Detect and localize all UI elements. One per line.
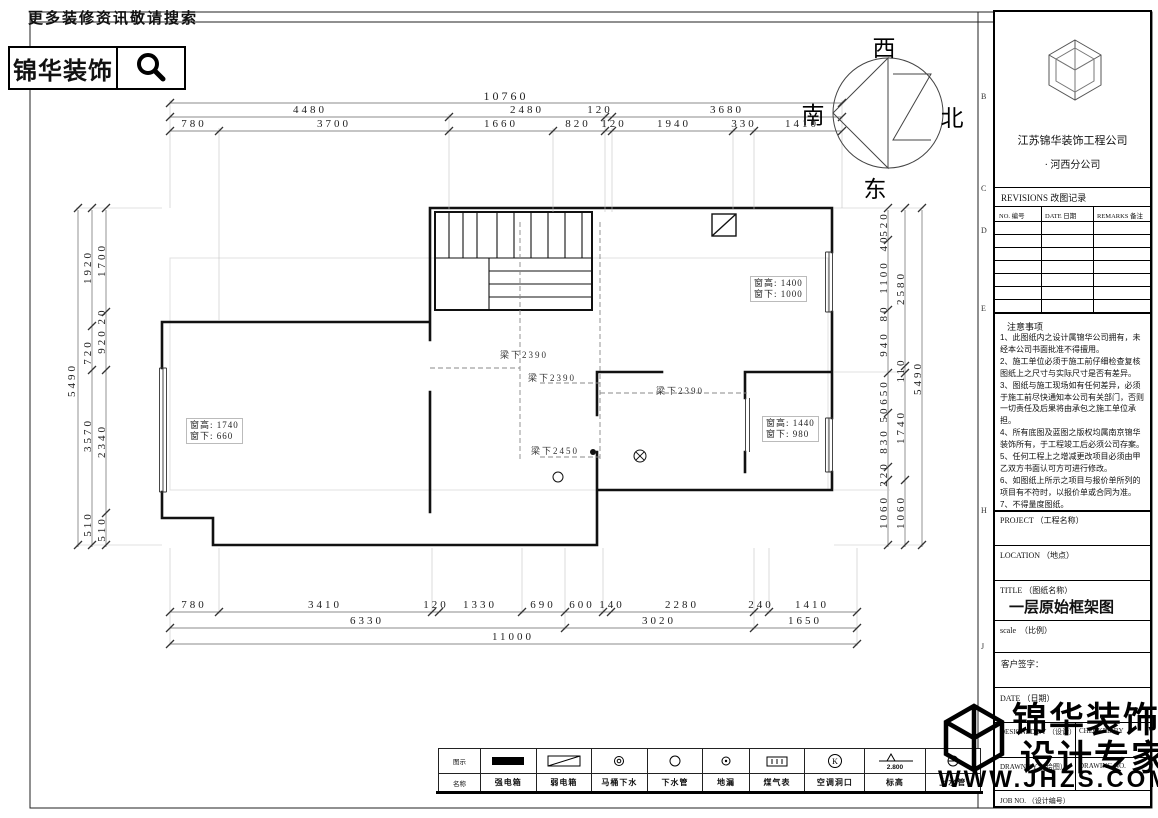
brand-name: 锦华装饰 — [10, 51, 116, 86]
zone-letter: H — [981, 506, 987, 515]
zone-letter: J — [981, 642, 984, 651]
dim-text: 1920 — [82, 250, 94, 284]
legend-item-name: 空调洞口 — [805, 774, 864, 791]
legend-underline — [436, 791, 983, 794]
dimension-ticks — [74, 99, 926, 648]
legend-item: 煤气表 — [750, 749, 806, 791]
beam-label: 梁下2450 — [531, 444, 579, 457]
dim-text: 3410 — [308, 599, 342, 611]
dim-text: 1060 — [895, 495, 907, 529]
project-label: PROJECT （工程名称） — [1000, 515, 1084, 526]
dim-text: 510 — [96, 516, 108, 542]
dim-text: 110 — [895, 357, 907, 382]
window-label: 窗高: 1400 窗下: 1000 — [750, 276, 807, 302]
dim-text: 2280 — [665, 599, 699, 611]
title-label: TITLE （图纸名称） — [1000, 585, 1072, 596]
dim-text: 2340 — [96, 424, 108, 458]
compass-east: 东 — [864, 170, 887, 204]
toilet-drain-symbol — [592, 749, 647, 774]
dim-text: 4480 — [293, 104, 327, 116]
window-label: 窗高: 1440 窗下: 980 — [762, 416, 819, 442]
legend-item: K 空调洞口 — [805, 749, 865, 791]
dim-text: 830 — [878, 428, 890, 454]
legend-item: 强电箱 — [481, 749, 537, 791]
svg-text:K: K — [832, 757, 838, 766]
watermark-url: WWW.JHZS.COM — [938, 766, 1158, 794]
window-height: 窗高: 1440 — [766, 418, 815, 429]
dim-text: 5490 — [912, 361, 924, 395]
legend-header-symbol: 图示 — [439, 749, 480, 774]
dim-text: 11000 — [492, 631, 534, 643]
dim-text: 1410 — [795, 599, 829, 611]
note-item: 5、任何工程上之增减更改项目必须由甲乙双方书面认可方可进行修改。 — [1000, 451, 1147, 474]
viewport-artifact — [170, 258, 828, 490]
dim-text: 510 — [82, 511, 94, 537]
legend-item-name: 马桶下水 — [592, 774, 647, 791]
drawing-title: 一层原始框架图 — [1009, 596, 1114, 617]
dim-text: 600 — [569, 599, 595, 611]
dim-text: 80 — [878, 305, 890, 322]
legend-item-name: 弱电箱 — [537, 774, 592, 791]
dim-text: 940 — [878, 331, 890, 357]
compass-icon — [833, 58, 943, 168]
legend-item: 地漏 — [703, 749, 749, 791]
compass-north: 北 — [941, 99, 964, 133]
dimension-lines — [78, 103, 922, 644]
dim-text: 120 — [423, 599, 449, 611]
note-item: 4、所有底图及蓝图之版权均属南京锦华装饰所有，于工程竣工后必须公司存案。 — [1000, 427, 1147, 450]
legend-item-name: 下水管 — [648, 774, 703, 791]
location-label: LOCATION （地点） — [1000, 550, 1074, 561]
dim-text: 1650 — [788, 615, 822, 627]
legend-item: 马桶下水 — [592, 749, 648, 791]
note-item: 3、图纸与施工现场如有任何差异，必须于施工前尽快通知本公司有关部门，否则一切责任… — [1000, 380, 1147, 426]
rev-col-remarks: REMARKS 备注 — [1097, 210, 1143, 220]
client-signature-label: 客户签字： — [1001, 658, 1044, 670]
dim-text: 2580 — [895, 271, 907, 305]
zone-letter: D — [981, 226, 987, 235]
window-sill: 窗下: 660 — [190, 431, 239, 442]
dim-text: 1740 — [895, 410, 907, 444]
window-label: 窗高: 1740 窗下: 660 — [186, 418, 243, 444]
company-name: 江苏锦华装饰工程公司 — [995, 132, 1150, 148]
dim-text: 1700 — [96, 243, 108, 277]
dim-text: 40 — [878, 235, 890, 252]
legend-item: 下水管 — [648, 749, 704, 791]
flue-box — [712, 214, 736, 236]
compass-west: 西 — [873, 29, 896, 63]
note-item: 1、此图纸内之设计属锦华公司拥有，未经本公司书面批准不得擅用。 — [1000, 332, 1147, 355]
zone-letter: B — [981, 92, 986, 101]
dim-text: 10760 — [484, 89, 529, 104]
legend-item: 弱电箱 — [537, 749, 593, 791]
zone-letter: E — [981, 304, 986, 313]
dim-text: 220 — [878, 461, 890, 487]
ac-hole-symbol: K — [805, 749, 864, 774]
dim-text: 820 — [565, 118, 591, 130]
beam-label: 梁下2390 — [500, 348, 548, 361]
dim-text: 2480 — [510, 104, 544, 116]
search-icon — [118, 51, 184, 85]
beam-label: 梁下2390 — [656, 384, 704, 397]
dim-text: 50 — [878, 406, 890, 423]
dim-text: 120 — [587, 104, 613, 116]
floor-drain-symbol — [703, 749, 748, 774]
dim-text: 920 — [96, 328, 108, 354]
dim-text: 3700 — [317, 118, 351, 130]
dim-text: 20 — [96, 308, 108, 325]
dim-text: 780 — [181, 599, 207, 611]
drain-pipe-symbol — [648, 749, 703, 774]
search-hint-text: 更多装修资讯敬请搜索 — [28, 7, 198, 28]
elevation-symbol: 2.800 — [865, 749, 924, 774]
dim-text: 650 — [878, 379, 890, 405]
dim-text: 3020 — [642, 615, 676, 627]
window-sill: 窗下: 1000 — [754, 289, 803, 300]
sheet-frame — [30, 12, 1152, 808]
dim-text: 3570 — [82, 418, 94, 452]
windows-linework — [160, 252, 833, 492]
dim-text: 690 — [530, 599, 556, 611]
legend-item-name: 煤气表 — [750, 774, 805, 791]
dim-text: 140 — [599, 599, 625, 611]
revisions-title: REVISIONS 改图记录 — [1001, 191, 1086, 204]
title-block: 江苏锦华装饰工程公司 · 河西分公司 REVISIONS 改图记录 NO. 编号… — [993, 10, 1152, 808]
beam-label: 梁下2390 — [528, 371, 576, 384]
dim-text: 1060 — [878, 495, 890, 529]
note-item: 2、施工单位必须于施工前仔细检查复核图纸上之尺寸与实际尺寸是否有差异。 — [1000, 356, 1147, 379]
elevation-value: 2.800 — [887, 764, 903, 771]
brand-logo-box: 锦华装饰 — [8, 46, 186, 90]
dim-text: 240 — [748, 599, 774, 611]
dim-text: 3680 — [710, 104, 744, 116]
drawing-sheet: 更多装修资讯敬请搜索 锦华装饰 西 南 北 东 10760 4480 2480 … — [0, 0, 1158, 818]
notes-block: 1、此图纸内之设计属锦华公司拥有，未经本公司书面批准不得擅用。 2、施工单位必须… — [1000, 332, 1147, 512]
rev-col-date: DATE 日期 — [1045, 210, 1076, 220]
dim-text: 1100 — [878, 260, 890, 294]
dim-text: 1940 — [657, 118, 691, 130]
dim-text: 1660 — [484, 118, 518, 130]
note-item: 6、如图纸上所示之项目与报价单所列的项目有不符时，以报价单或合同为准。 — [1000, 475, 1147, 498]
scale-label: scale （比例） — [1000, 625, 1052, 636]
window-height: 窗高: 1740 — [190, 420, 239, 431]
window-height: 窗高: 1400 — [754, 278, 803, 289]
dim-text: 120 — [601, 118, 627, 130]
rev-col-no: NO. 编号 — [999, 210, 1025, 220]
dim-text: 1410 — [785, 118, 819, 130]
window-sill: 窗下: 980 — [766, 429, 815, 440]
legend-item: 2.800 标高 — [865, 749, 925, 791]
job-no-label: JOB NO. （设计编号） — [1000, 796, 1070, 806]
company-branch: · 河西分公司 — [995, 156, 1150, 171]
legend-item-name: 地漏 — [703, 774, 748, 791]
dim-text: 6330 — [350, 615, 384, 627]
zone-letter: C — [981, 184, 986, 193]
dim-text: 720 — [82, 339, 94, 365]
legend-bar: 图示 名称 强电箱 弱电箱 马桶下水 下 — [438, 748, 981, 792]
dim-text: 1330 — [463, 599, 497, 611]
legend-header-name: 名称 — [439, 774, 480, 791]
gas-meter-symbol — [750, 749, 805, 774]
dim-text: 5490 — [66, 363, 78, 397]
legend-item-name: 标高 — [865, 774, 924, 791]
staircase — [435, 212, 592, 310]
dim-text: 330 — [731, 118, 757, 130]
strong-electric-box-symbol — [481, 749, 536, 774]
dim-text: 780 — [181, 118, 207, 130]
weak-electric-box-symbol — [537, 749, 592, 774]
dim-text: 520 — [878, 211, 890, 237]
cube-logo — [1035, 32, 1115, 124]
note-item: 7、不得量度图纸。 — [1000, 499, 1147, 511]
legend-item-name: 强电箱 — [481, 774, 536, 791]
legend-header-col: 图示 名称 — [439, 749, 481, 791]
